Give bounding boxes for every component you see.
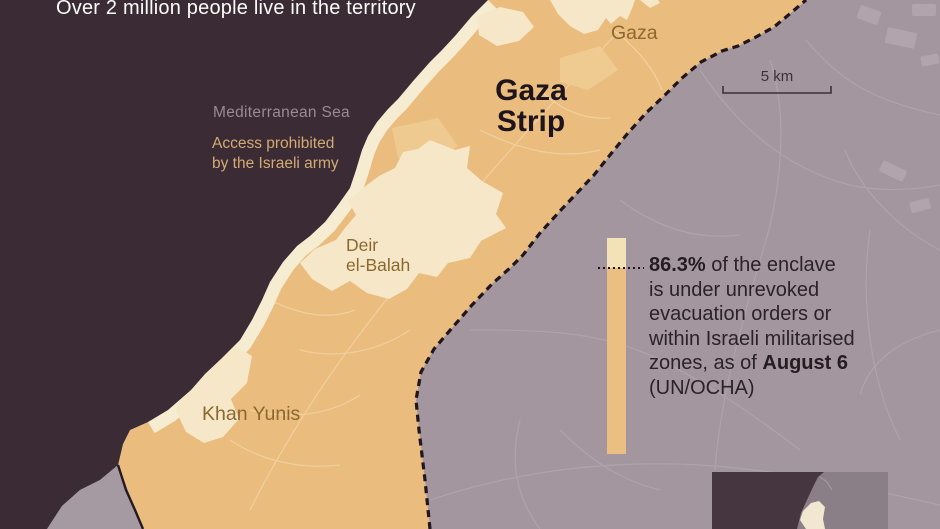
legend-bar-evacuated	[607, 268, 626, 454]
region-label-gaza-strip: Gaza Strip	[461, 75, 601, 137]
deir-line2: el-Balah	[346, 255, 410, 275]
scale-label: 5 km	[723, 68, 831, 85]
stat-value: 86.3%	[649, 254, 706, 276]
region-label-line1: Gaza	[461, 75, 601, 106]
page-title: Over 2 million people live in the territ…	[56, 0, 416, 20]
inset-map	[712, 472, 888, 529]
callout-line1: 86.3% of the enclave	[649, 253, 855, 278]
callout-line2: is under unrevoked	[649, 278, 855, 303]
sea-label: Mediterranean Sea	[213, 104, 350, 122]
region-label-line2: Strip	[461, 106, 601, 137]
callout-line3: evacuation orders or	[649, 302, 855, 327]
city-label-deir-el-balah: Deir el-Balah	[346, 235, 410, 275]
access-note-line2: by the Israeli army	[212, 154, 339, 174]
city-label-khan-yunis: Khan Yunis	[202, 403, 300, 426]
legend-bar-remaining	[607, 238, 626, 268]
stat-date: August 6	[762, 352, 848, 374]
infographic-gaza-map: Over 2 million people live in the territ…	[0, 0, 940, 529]
city-label-gaza: Gaza	[611, 22, 658, 45]
access-note-line1: Access prohibited	[212, 134, 339, 154]
deir-line1: Deir	[346, 235, 410, 255]
callout-line4: within Israeli militarised	[649, 327, 855, 352]
callout-line5: zones, as of August 6	[649, 351, 855, 376]
callout-line6: (UN/OCHA)	[649, 376, 855, 401]
evacuation-stat-callout: 86.3% of the enclave is under unrevoked …	[649, 253, 855, 401]
access-note: Access prohibited by the Israeli army	[212, 134, 339, 173]
